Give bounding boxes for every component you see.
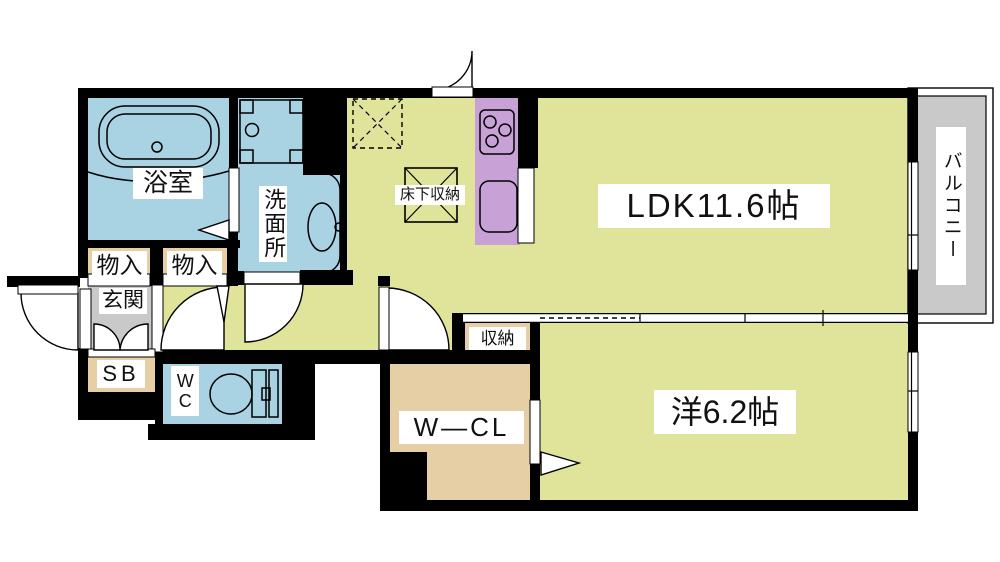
kitchen-counter-end [518,168,534,243]
underfloor-storage-label: 床下収納 [395,185,465,205]
wall-wcl-right-b [530,464,540,502]
wall-right-b [908,270,918,354]
washroom-door-opening [244,272,300,284]
vanity-floor [305,173,340,273]
entrance-label: 玄関 [99,288,147,314]
walk-in-closet-floor-lower [427,455,530,501]
storage1-label: 物入 [92,251,147,281]
wall-wc-bottom [148,424,315,440]
bathroom-door-frame [229,168,239,232]
window-bedroom [908,352,918,432]
balcony-label: バルコニー [936,127,966,285]
wall-washroom-bl [229,271,244,285]
wall-bottom [427,500,918,511]
wall-right-a [908,88,918,162]
wall-hall-bottom [155,350,540,364]
closet-label: 収納 [469,327,526,350]
wcl-door-frame [530,400,540,464]
walk-in-closet-label: W—CL [399,411,524,444]
wall-right-c [908,432,918,511]
washroom-label: 洗面所 [259,186,287,262]
wall-wcl-notch [380,452,427,511]
storage2-label: 物入 [167,251,222,281]
wall-kitchen-right [518,98,538,168]
ldk-top-door-swing [433,51,472,90]
bathroom-label: 浴室 [133,168,203,199]
wall-wc-right [282,364,315,424]
walk-in-closet-floor [390,358,530,460]
floor-plan: 浴室 洗面所 物入 物入 玄関 SB WC 床下収納 LDK11.6帖 バルコニ… [0,0,1000,562]
hall-ldk-door-leaf [379,287,389,350]
entrance-door-opening [80,289,91,349]
wall-wcl-left [380,358,390,458]
shoebox-label: SB [97,360,145,388]
floor-plan-drawing [0,0,1000,562]
entrance-door-leaf [18,285,78,294]
wall-storage-divider [150,246,163,286]
wall-bath-divider-top [229,98,238,168]
wall-left-upper [78,88,88,278]
wall-top [78,88,918,98]
wall-shoebox-bottom [78,392,163,420]
wall-washroom-right [303,98,347,175]
wall-wc-left [155,364,163,424]
toilet-label: WC [171,366,199,416]
entrance-door-swing [21,293,78,350]
partition-track [463,313,908,323]
window-ldk-balcony [908,162,918,270]
wall-ldk-door-post [378,276,390,286]
ldk-top-door-leaf [432,87,473,97]
wall-wcl-right-a [530,358,540,400]
ldk-label: LDK11.6帖 [598,184,830,228]
wall-bath-bottom [88,240,240,248]
western-room-label: 洋6.2帖 [654,390,796,434]
